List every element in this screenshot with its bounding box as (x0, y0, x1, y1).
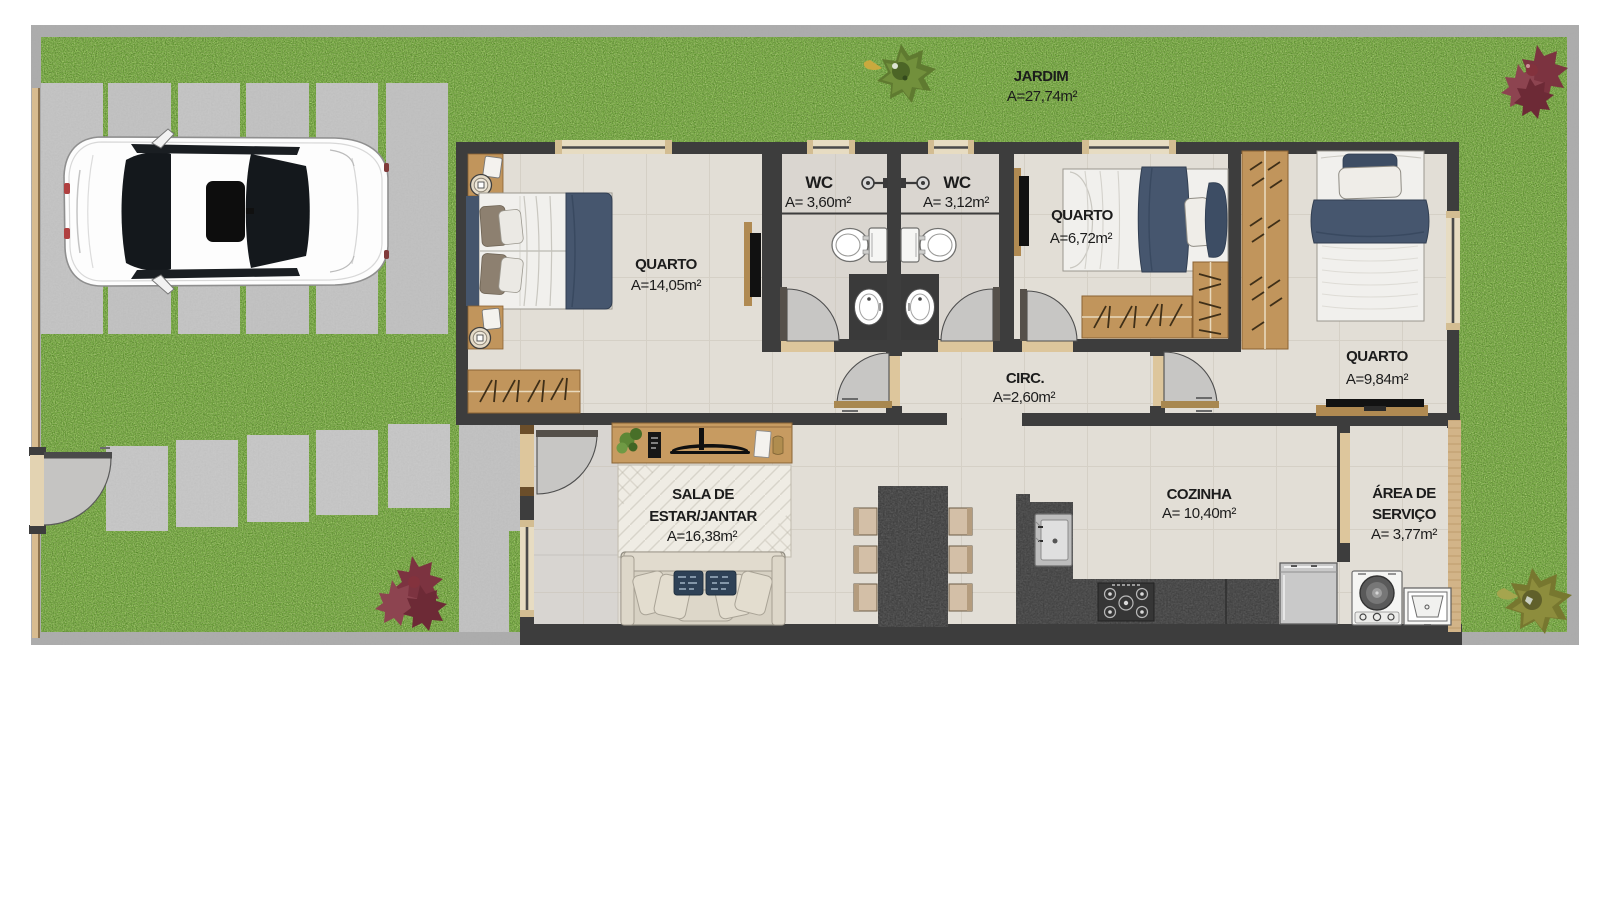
svg-text:WC: WC (805, 173, 833, 192)
svg-text:SALA DE: SALA DE (672, 486, 734, 503)
svg-text:A= 3,12m²: A= 3,12m² (923, 194, 989, 211)
svg-text:A=6,72m²: A=6,72m² (1050, 230, 1113, 247)
svg-text:A=9,84m²: A=9,84m² (1346, 371, 1409, 388)
svg-text:A= 3,60m²: A= 3,60m² (785, 194, 851, 211)
svg-text:A=2,60m²: A=2,60m² (993, 389, 1056, 406)
svg-text:JARDIM: JARDIM (1014, 68, 1069, 85)
svg-text:ÁREA DE: ÁREA DE (1372, 485, 1436, 502)
svg-text:A=27,74m²: A=27,74m² (1007, 88, 1078, 105)
svg-text:A= 3,77m²: A= 3,77m² (1371, 526, 1437, 543)
svg-text:A= 10,40m²: A= 10,40m² (1162, 505, 1236, 522)
svg-text:COZINHA: COZINHA (1167, 486, 1232, 503)
svg-text:A=16,38m²: A=16,38m² (667, 528, 738, 545)
svg-text:QUARTO: QUARTO (635, 256, 698, 273)
svg-text:QUARTO: QUARTO (1346, 348, 1409, 365)
svg-text:QUARTO: QUARTO (1051, 207, 1114, 224)
svg-text:A=14,05m²: A=14,05m² (631, 277, 702, 294)
svg-text:CIRC.: CIRC. (1006, 370, 1045, 387)
svg-text:WC: WC (943, 173, 971, 192)
svg-text:SERVIÇO: SERVIÇO (1372, 506, 1437, 523)
svg-text:ESTAR/JANTAR: ESTAR/JANTAR (649, 508, 757, 525)
